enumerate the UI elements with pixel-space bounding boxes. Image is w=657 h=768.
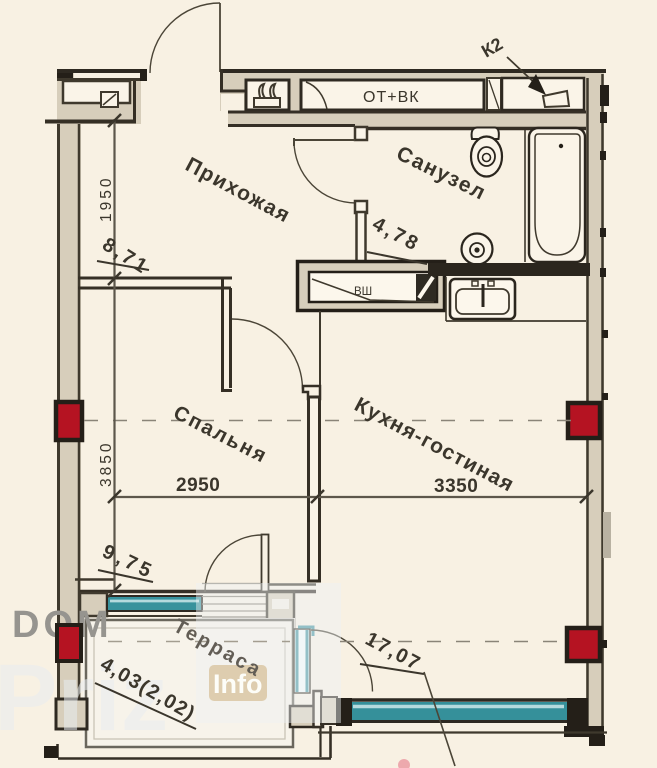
svg-text:ВШ: ВШ [354,286,372,298]
svg-text:3850: 3850 [98,441,115,487]
svg-text:1950: 1950 [98,176,115,222]
svg-text:2950: 2950 [176,475,220,496]
svg-text:3350: 3350 [434,476,478,497]
svg-text:ОТ+ВК: ОТ+ВК [363,89,420,106]
